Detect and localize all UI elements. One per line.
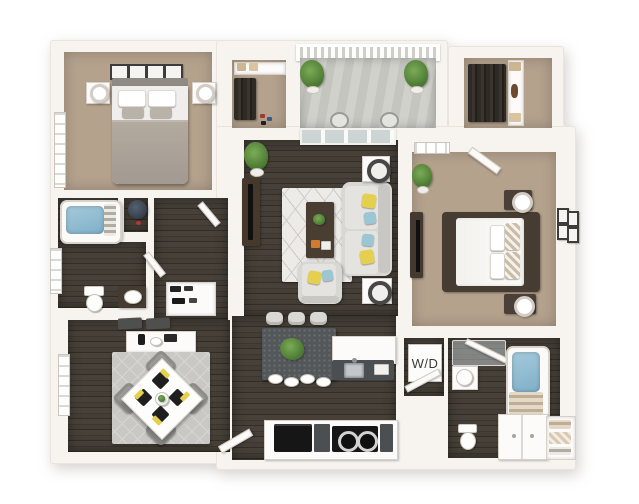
table-lamp [514,296,535,317]
bar-stool [310,312,327,325]
floor-plan: W/D [0,0,639,504]
decor-bowl [150,337,162,346]
tucked-stool [268,374,283,384]
bar-stool [266,312,283,325]
throw-pillow-blue [363,211,376,224]
bed-duvet [112,120,188,184]
bath-towels [104,204,116,236]
patterned-pillow [505,252,520,279]
coffee-table-tray [321,241,331,250]
plant-pot [250,168,264,177]
bedroom-1-window [54,112,66,188]
floor-lamp [367,159,391,183]
water-heater-tank [128,200,147,219]
countertop-section [314,424,330,452]
master-vanity [498,414,548,460]
shoes [261,121,266,125]
balcony-chair [330,112,349,129]
balcony-plant [404,60,428,88]
patterned-pillow [505,223,520,250]
cooktop-burner [338,431,359,452]
tv-screen [248,184,253,240]
tucked-stool [300,374,315,384]
master-sink [456,369,473,386]
plant-pot [410,86,424,94]
table-lamp [512,192,533,213]
bed-pillow [490,225,505,251]
bed-accent-pillow [122,107,144,118]
throw-pillow-blue [321,269,333,281]
master-bathtub-water [512,352,540,392]
throw-pillow-yellow [307,270,322,285]
storage-box [509,113,521,122]
table-lamp [90,84,109,103]
hanging-clothes [468,64,506,122]
hanging-clothes [234,78,256,120]
tucked-stool [316,377,331,387]
plant-pot [306,86,320,94]
towels [549,447,571,455]
decor-box [164,334,177,342]
floor-lamp [368,281,392,305]
balcony-glass-doors [300,128,396,145]
storage-box [509,62,521,71]
living-plant [244,142,268,170]
throw-pillow-blue [361,233,374,246]
closet-item [189,298,197,303]
ceiling-light [118,317,143,329]
wall-art-frame [567,227,579,243]
balcony-chair [380,112,399,129]
throw-pillow-yellow [361,193,377,209]
toilet-bowl [86,294,103,312]
towels [549,420,571,429]
centerpiece-plant [158,395,165,402]
oven [274,424,312,452]
water-heater-valve [136,221,141,225]
toilet-bowl [460,432,476,450]
storage-box [237,63,246,71]
closet-item [170,286,181,292]
master-window [414,142,450,154]
sink-faucet [352,358,357,363]
bed-pillow [490,253,505,279]
closet-accessory [511,84,518,98]
storage-box [249,63,258,71]
master-tv-screen [416,220,420,272]
bed-pillow [118,90,146,107]
bathroom-1-window [50,248,62,294]
closet-item [184,286,193,291]
vanity-knob [530,434,534,438]
bed-pillow [148,90,176,107]
cooktop-burner [357,431,378,452]
bathtub-water [66,206,104,234]
kitchen-sink [344,363,364,378]
vanity-knob [512,434,516,438]
ceiling-light [146,317,171,329]
washer-dryer-label: W/D [412,356,439,371]
patterned-towel [549,432,571,444]
plant-pot [417,186,429,194]
table-plant [313,214,325,225]
shoes [267,117,272,121]
countertop-section [380,424,393,452]
island-plant [280,338,304,360]
bar-stool [288,312,305,325]
sofa-back [378,185,390,273]
coffee-table-books [311,240,320,248]
throw-pillow-yellow [359,249,375,265]
balcony-plant [300,60,324,88]
dining-window [58,354,70,416]
table-lamp [196,84,215,103]
master-plant [412,164,432,188]
bed-accent-pillow [150,107,172,118]
shoes [260,114,265,118]
armchair-back [301,296,339,303]
counter-tray [374,364,389,375]
stacked-towels [509,392,543,416]
closet-item [172,298,185,304]
vanity-sink [124,290,142,304]
decor-vase [138,334,145,345]
tucked-stool [284,377,299,387]
